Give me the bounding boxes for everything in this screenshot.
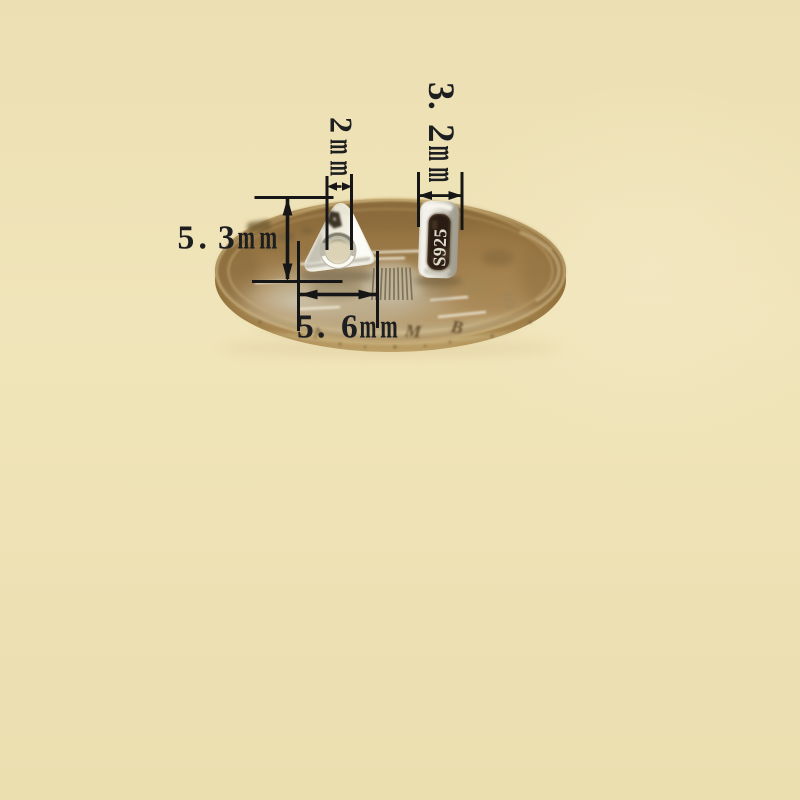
svg-text:m: m xyxy=(380,309,398,346)
svg-text:.: . xyxy=(199,220,207,257)
svg-text:5: 5 xyxy=(297,309,314,346)
svg-text:6: 6 xyxy=(341,309,358,346)
svg-text:3: 3 xyxy=(420,82,461,101)
svg-text:m: m xyxy=(238,220,256,257)
svg-text:S925: S925 xyxy=(429,228,450,267)
svg-text:m: m xyxy=(259,220,277,257)
svg-text:M: M xyxy=(403,320,423,341)
svg-text:m: m xyxy=(360,309,377,346)
svg-text:2: 2 xyxy=(324,117,360,133)
svg-text:m: m xyxy=(420,146,466,162)
svg-text:m: m xyxy=(323,161,362,177)
svg-text:.: . xyxy=(421,101,460,110)
svg-text:2: 2 xyxy=(420,124,461,143)
svg-text:.: . xyxy=(317,309,325,346)
svg-text:m: m xyxy=(420,167,466,182)
svg-text:5: 5 xyxy=(178,220,195,257)
svg-text:m: m xyxy=(323,139,362,155)
svg-text:3: 3 xyxy=(218,220,235,257)
